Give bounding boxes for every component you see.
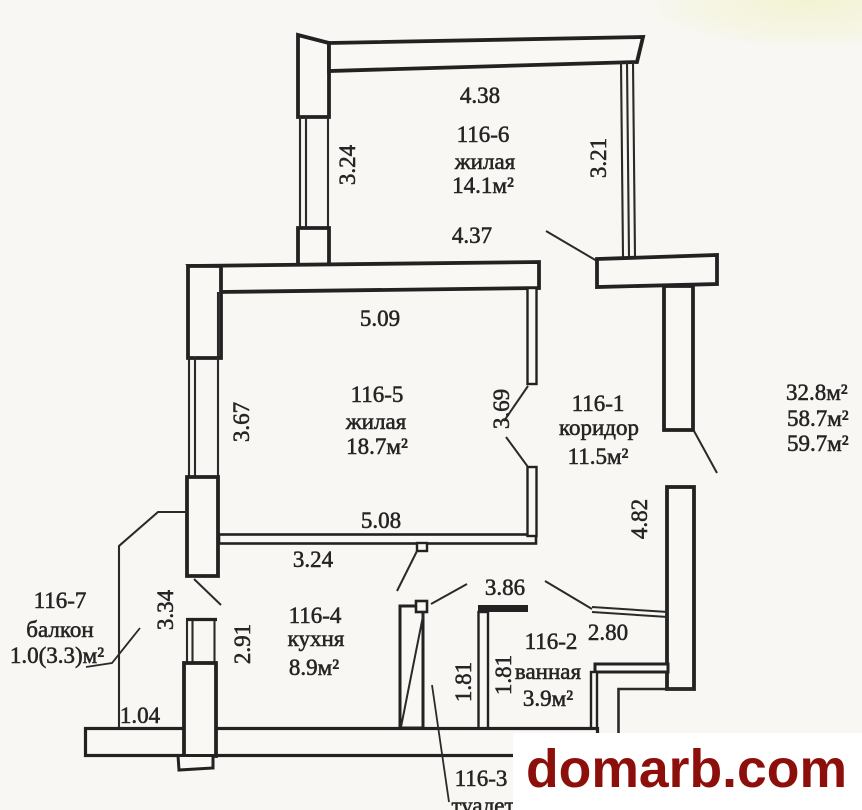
svg-text:кухня: кухня: [288, 626, 345, 651]
svg-text:32.8м²: 32.8м²: [786, 380, 848, 405]
svg-text:3.34: 3.34: [153, 589, 178, 630]
svg-text:1.0(3.3)м²: 1.0(3.3)м²: [10, 643, 104, 668]
svg-text:5.08: 5.08: [361, 508, 401, 533]
svg-text:4.38: 4.38: [460, 83, 500, 108]
svg-text:1.04: 1.04: [120, 703, 161, 728]
svg-text:туалет: туалет: [451, 793, 514, 810]
svg-text:3.24: 3.24: [293, 547, 334, 572]
svg-text:3.9м²: 3.9м²: [523, 686, 573, 711]
svg-text:59.7м²: 59.7м²: [787, 431, 849, 456]
svg-text:116-1: 116-1: [572, 391, 625, 416]
svg-text:3.67: 3.67: [229, 402, 254, 442]
svg-text:14.1м²: 14.1м²: [452, 173, 514, 198]
svg-text:3.24: 3.24: [335, 144, 360, 185]
svg-text:4.82: 4.82: [627, 499, 652, 539]
svg-text:8.9м²: 8.9м²: [289, 655, 339, 680]
svg-text:3.69: 3.69: [489, 389, 514, 429]
svg-text:коридор: коридор: [559, 415, 639, 440]
svg-text:жилая: жилая: [454, 149, 516, 174]
svg-text:58.7м²: 58.7м²: [787, 406, 849, 431]
svg-text:5.09: 5.09: [360, 306, 400, 331]
svg-text:116-6: 116-6: [457, 122, 510, 147]
svg-text:1.81: 1.81: [491, 655, 516, 695]
svg-text:жилая: жилая: [345, 409, 407, 434]
svg-text:11.5м²: 11.5м²: [568, 444, 629, 469]
svg-text:3.21: 3.21: [586, 138, 611, 178]
svg-text:4.37: 4.37: [452, 223, 492, 248]
svg-text:116-7: 116-7: [34, 588, 87, 613]
svg-text:балкон: балкон: [26, 617, 93, 642]
svg-text:domarb.com: domarb.com: [526, 740, 847, 799]
svg-text:116-5: 116-5: [351, 382, 404, 407]
svg-text:116-2: 116-2: [525, 629, 578, 654]
svg-text:ванная: ванная: [515, 659, 582, 684]
svg-text:116-3: 116-3: [455, 766, 508, 791]
svg-text:1.81: 1.81: [451, 662, 476, 702]
svg-text:3.86: 3.86: [485, 575, 525, 600]
svg-text:18.7м²: 18.7м²: [346, 434, 408, 459]
svg-text:2.91: 2.91: [230, 624, 255, 664]
svg-text:116-4: 116-4: [289, 603, 342, 628]
svg-text:2.80: 2.80: [588, 620, 628, 645]
